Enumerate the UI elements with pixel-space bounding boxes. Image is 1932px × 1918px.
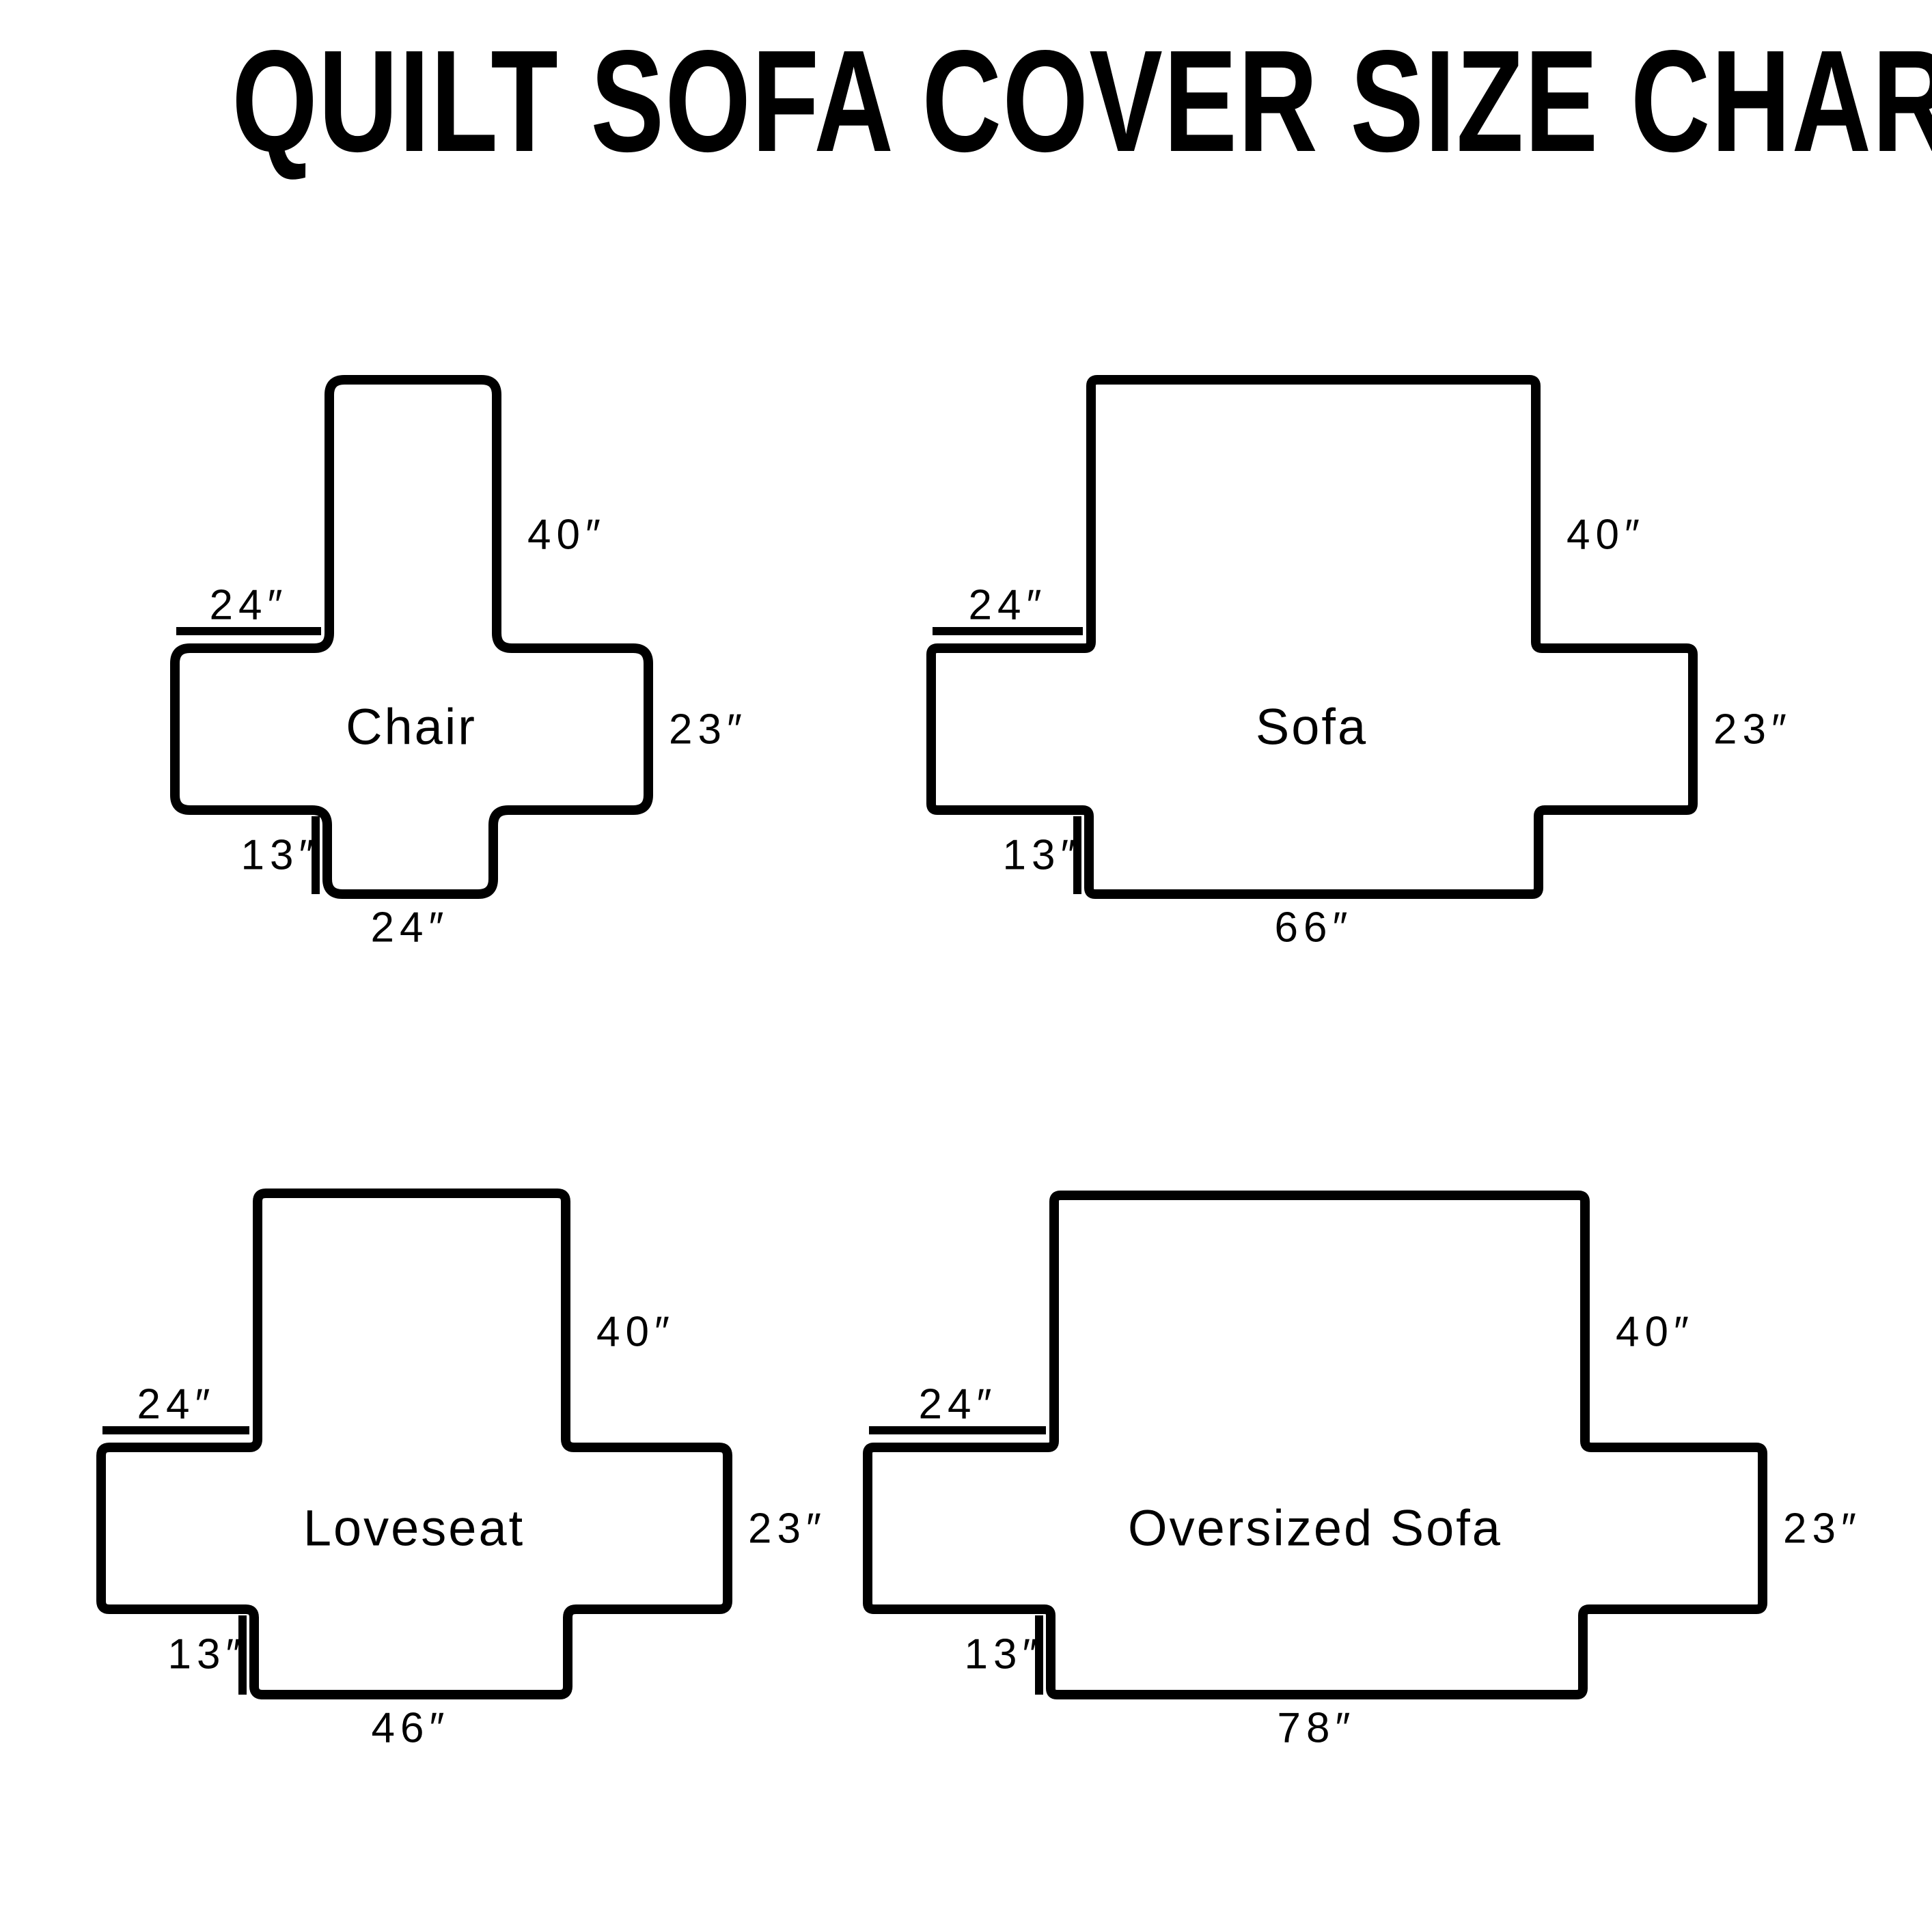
loveseat-outline [101, 1193, 728, 1695]
size-chart-page: QUILT SOFA COVER SIZE CHART Chair 40″ 24… [0, 0, 1932, 1918]
sofa-outline [931, 380, 1693, 894]
chair-outline [175, 380, 648, 894]
size-chart-canvas [0, 0, 1932, 1918]
oversized-sofa-outline [868, 1195, 1763, 1695]
